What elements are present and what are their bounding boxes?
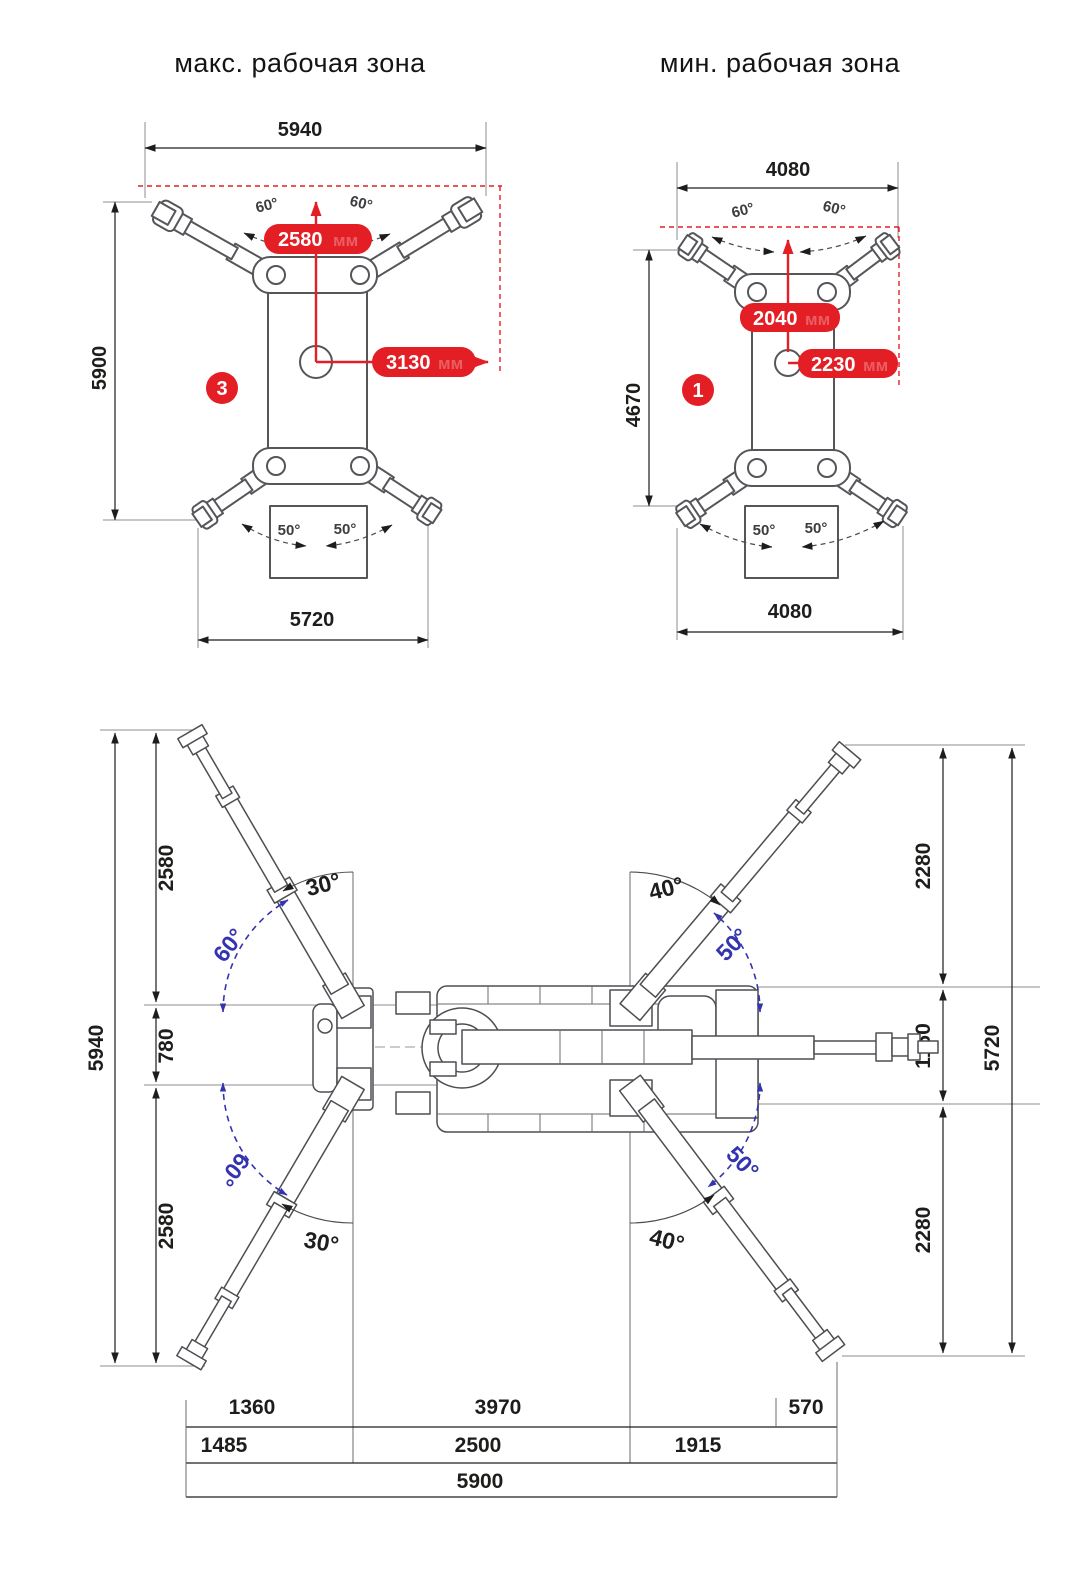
min-dim-left: 4670: [623, 383, 645, 428]
min-angle-bottom-left: 50°: [753, 522, 776, 539]
max-side-reach-unit: мм: [438, 354, 463, 373]
plan-row1-c3: 570: [788, 1396, 823, 1419]
plan-row2-c3: 1915: [675, 1434, 722, 1457]
max-forward-reach-value: 2580: [278, 229, 323, 251]
plan-dim-left-mid: 780: [155, 1028, 178, 1063]
min-side-reach-unit: мм: [863, 356, 888, 375]
plan-row3-total: 5900: [457, 1470, 504, 1493]
min-forward-reach-value: 2040: [753, 308, 798, 330]
plan-row2-c2: 2500: [455, 1434, 502, 1457]
min-side-reach-value: 2230: [811, 354, 856, 376]
plan-dim-left-bottom: 2580: [155, 1203, 178, 1250]
min-zone-badge-number: 1: [692, 380, 703, 402]
min-zone-title: мин. рабочая зона: [660, 48, 901, 78]
plan-dim-right-total: 5720: [981, 1025, 1004, 1072]
min-dim-bottom: 4080: [768, 601, 813, 623]
max-forward-reach-unit: мм: [333, 231, 358, 250]
plan-dim-right-bottom: 2280: [912, 1207, 935, 1254]
plan-row1-c2: 3970: [475, 1396, 522, 1419]
technical-diagram-page: макс. рабочая зона мин. рабочая зона 594…: [0, 0, 1080, 1593]
max-dim-top: 5940: [278, 119, 323, 141]
max-dim-left: 5900: [89, 346, 111, 391]
plan-row1-c1: 1360: [229, 1396, 276, 1419]
min-forward-reach-unit: мм: [805, 310, 830, 329]
max-zone-title: макс. рабочая зона: [174, 48, 426, 78]
max-angle-bottom-right: 50°: [334, 521, 357, 538]
plan-dim-right-top: 2280: [912, 843, 935, 890]
max-side-reach-value: 3130: [386, 352, 431, 374]
max-zone-badge-number: 3: [216, 378, 227, 400]
plan-dim-left-total: 5940: [85, 1025, 108, 1072]
min-angle-bottom-right: 50°: [805, 520, 828, 537]
max-dim-bottom: 5720: [290, 609, 335, 631]
max-angle-bottom-left: 50°: [278, 522, 301, 539]
plan-row2-c1: 1485: [201, 1434, 248, 1457]
page-background: [0, 0, 1080, 1593]
plan-dim-left-top: 2580: [155, 845, 178, 892]
working-zone-drawing: макс. рабочая зона мин. рабочая зона 594…: [0, 0, 1080, 1593]
min-dim-top: 4080: [766, 159, 811, 181]
